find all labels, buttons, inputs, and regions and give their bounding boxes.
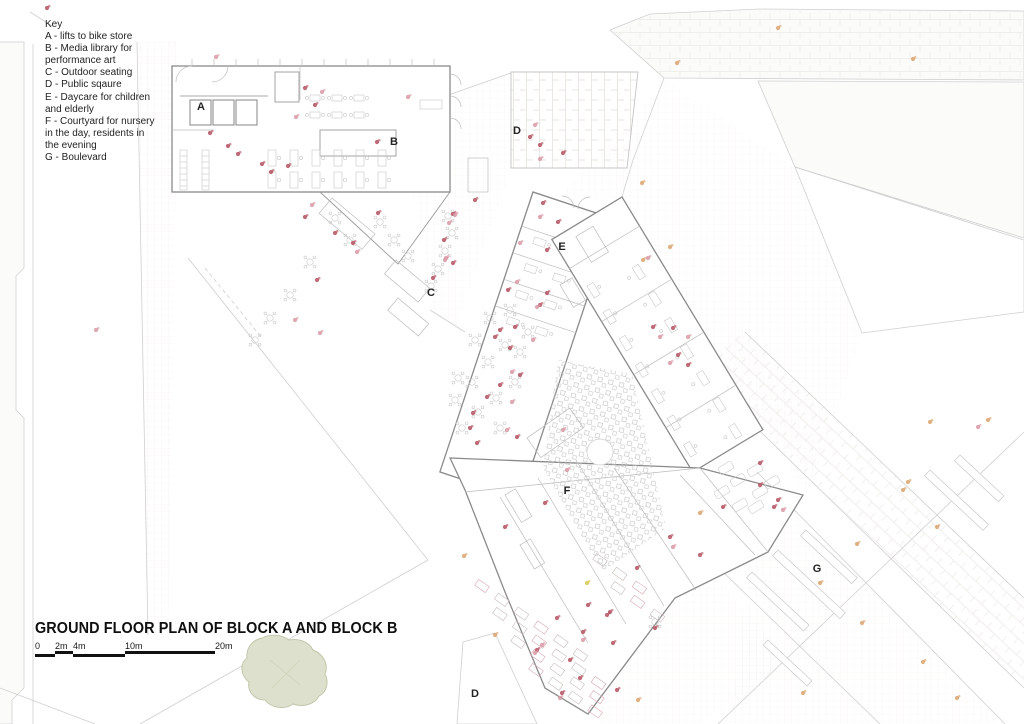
key-item: D - Public sqaure (45, 79, 157, 91)
block-a-outline (172, 66, 450, 192)
key-item: C - Outdoor seating (45, 67, 157, 79)
person-marker (333, 230, 339, 235)
person-marker (303, 214, 309, 219)
person-marker (976, 424, 982, 429)
person-marker (462, 553, 468, 558)
key-heading: Key (45, 19, 157, 31)
person-marker (493, 632, 499, 637)
person-marker (855, 541, 861, 546)
scale-segment (55, 651, 73, 654)
south-square-paving (457, 633, 537, 724)
scale-tick-2m: 2m (55, 641, 68, 651)
person-marker (45, 5, 51, 10)
scale-tick-4m: 4m (73, 641, 86, 651)
person-marker (310, 202, 316, 207)
scale-tick-20m: 20m (215, 641, 233, 651)
courtyard-tree-pit (587, 439, 613, 465)
person-marker (986, 417, 992, 422)
plan-label-f: F (564, 485, 571, 497)
person-marker (214, 54, 220, 59)
person-marker (315, 277, 321, 282)
key-item: A - lifts to bike store (45, 31, 157, 43)
key-item: E - Daycare for children and elderly (45, 92, 157, 116)
floor-plan-page: ABCDEFGD Key A - lifts to bike storeB - … (0, 0, 1024, 724)
key-item: G - Boulevard (45, 152, 157, 164)
scale-tick-0: 0 (35, 641, 40, 651)
person-marker (355, 249, 361, 254)
scale-bar: 02m4m10m20m (35, 641, 255, 663)
plan-label-e: E (558, 241, 565, 253)
public-square-top (511, 72, 638, 168)
plan-label-a: A (197, 101, 205, 113)
person-marker (318, 330, 324, 335)
left-street-block (0, 42, 24, 724)
plan-label-c: C (427, 287, 435, 299)
block-a (172, 59, 488, 192)
plaza-stair-2 (384, 260, 429, 302)
person-marker (906, 479, 912, 484)
person-marker (928, 419, 934, 424)
plan-label-d: D (471, 688, 479, 700)
scale-segment (35, 654, 55, 657)
plan-label-d: D (513, 125, 521, 137)
plaza-stair-3 (388, 298, 429, 336)
plan-label-b: B (390, 136, 398, 148)
block-a-columns (192, 59, 434, 66)
key-legend: Key A - lifts to bike storeB - Media lib… (45, 19, 157, 164)
plan-title: GROUND FLOOR PLAN OF BLOCK A AND BLOCK B (35, 620, 397, 638)
person-marker (94, 327, 100, 332)
person-marker (376, 210, 382, 215)
scale-segment (73, 654, 125, 657)
key-item: B - Media library for performance art (45, 43, 157, 67)
lift-cores (180, 96, 268, 125)
scale-segment (125, 651, 215, 654)
person-marker (758, 460, 764, 465)
plan-label-g: G (813, 563, 822, 575)
scale-tick-10m: 10m (125, 641, 143, 651)
person-marker (293, 317, 299, 322)
key-items: A - lifts to bike storeB - Media library… (45, 31, 157, 164)
key-item: F - Courtyard for nursery in the day, re… (45, 116, 157, 152)
